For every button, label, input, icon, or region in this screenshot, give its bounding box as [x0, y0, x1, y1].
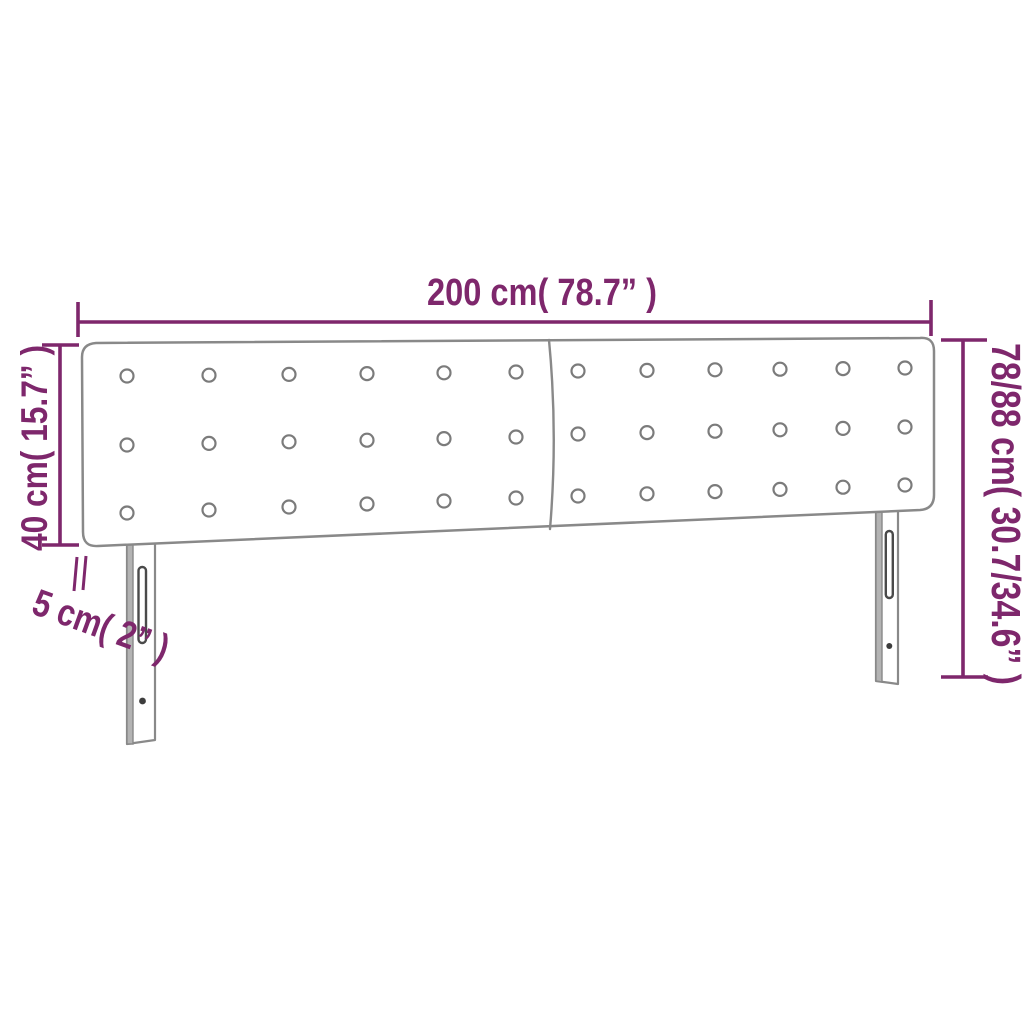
headboard-dimension-diagram: 200 cm( 78.7” ) 40 cm( 15.7” ) 5 cm( 2” … — [0, 0, 1024, 1024]
tufting-button — [283, 368, 296, 381]
left-leg-screw — [139, 698, 146, 705]
panel-height-label: 40 cm( 15.7” ) — [14, 345, 55, 551]
tufting-button — [283, 501, 296, 514]
tufting-button — [510, 431, 523, 444]
total-height-dimension: 78/88 cm( 30.7/34.6” ) — [941, 340, 1024, 685]
tufting-button — [121, 439, 134, 452]
tufting-button — [203, 369, 216, 382]
tufting-button — [510, 366, 523, 379]
tufting-button — [774, 483, 787, 496]
tufting-button — [361, 498, 374, 511]
thickness-tick-2 — [83, 556, 86, 590]
tufting-button — [510, 492, 523, 505]
diagram-canvas: 200 cm( 78.7” ) 40 cm( 15.7” ) 5 cm( 2” … — [0, 0, 1024, 1024]
tufting-button — [438, 432, 451, 445]
tufting-button — [709, 363, 722, 376]
tufting-button — [899, 479, 912, 492]
tufting-button — [203, 504, 216, 517]
tufting-button — [641, 487, 654, 500]
right-leg-screw — [886, 643, 892, 649]
tufting-button — [572, 490, 585, 503]
tufting-button — [438, 495, 451, 508]
tufting-button — [283, 435, 296, 448]
tufting-button — [438, 366, 451, 379]
tufting-button — [572, 365, 585, 378]
width-dimension-label: 200 cm( 78.7” ) — [427, 272, 657, 314]
tufting-button — [774, 423, 787, 436]
right-leg — [876, 503, 898, 684]
tufting-button — [203, 437, 216, 450]
right-leg-edge-shade — [876, 505, 882, 682]
tufting-button — [361, 367, 374, 380]
tufting-button — [641, 426, 654, 439]
tufting-button — [361, 434, 374, 447]
tufting-button — [121, 507, 134, 520]
tufting-button — [572, 428, 585, 441]
tufting-button — [709, 425, 722, 438]
total-height-label: 78/88 cm( 30.7/34.6” ) — [983, 343, 1024, 685]
panel-height-dimension: 40 cm( 15.7” ) — [14, 345, 79, 551]
tufting-button — [899, 362, 912, 375]
right-leg-slot — [886, 531, 893, 598]
tufting-button — [709, 485, 722, 498]
tufting-button — [899, 421, 912, 434]
tufting-button — [121, 370, 134, 383]
tufting-button — [837, 481, 850, 494]
tufting-button — [837, 362, 850, 375]
thickness-tick-1 — [74, 557, 77, 591]
headboard — [82, 338, 934, 546]
width-dimension: 200 cm( 78.7” ) — [78, 272, 931, 337]
tufting-button — [837, 422, 850, 435]
tufting-button — [774, 363, 787, 376]
tufting-button — [641, 364, 654, 377]
